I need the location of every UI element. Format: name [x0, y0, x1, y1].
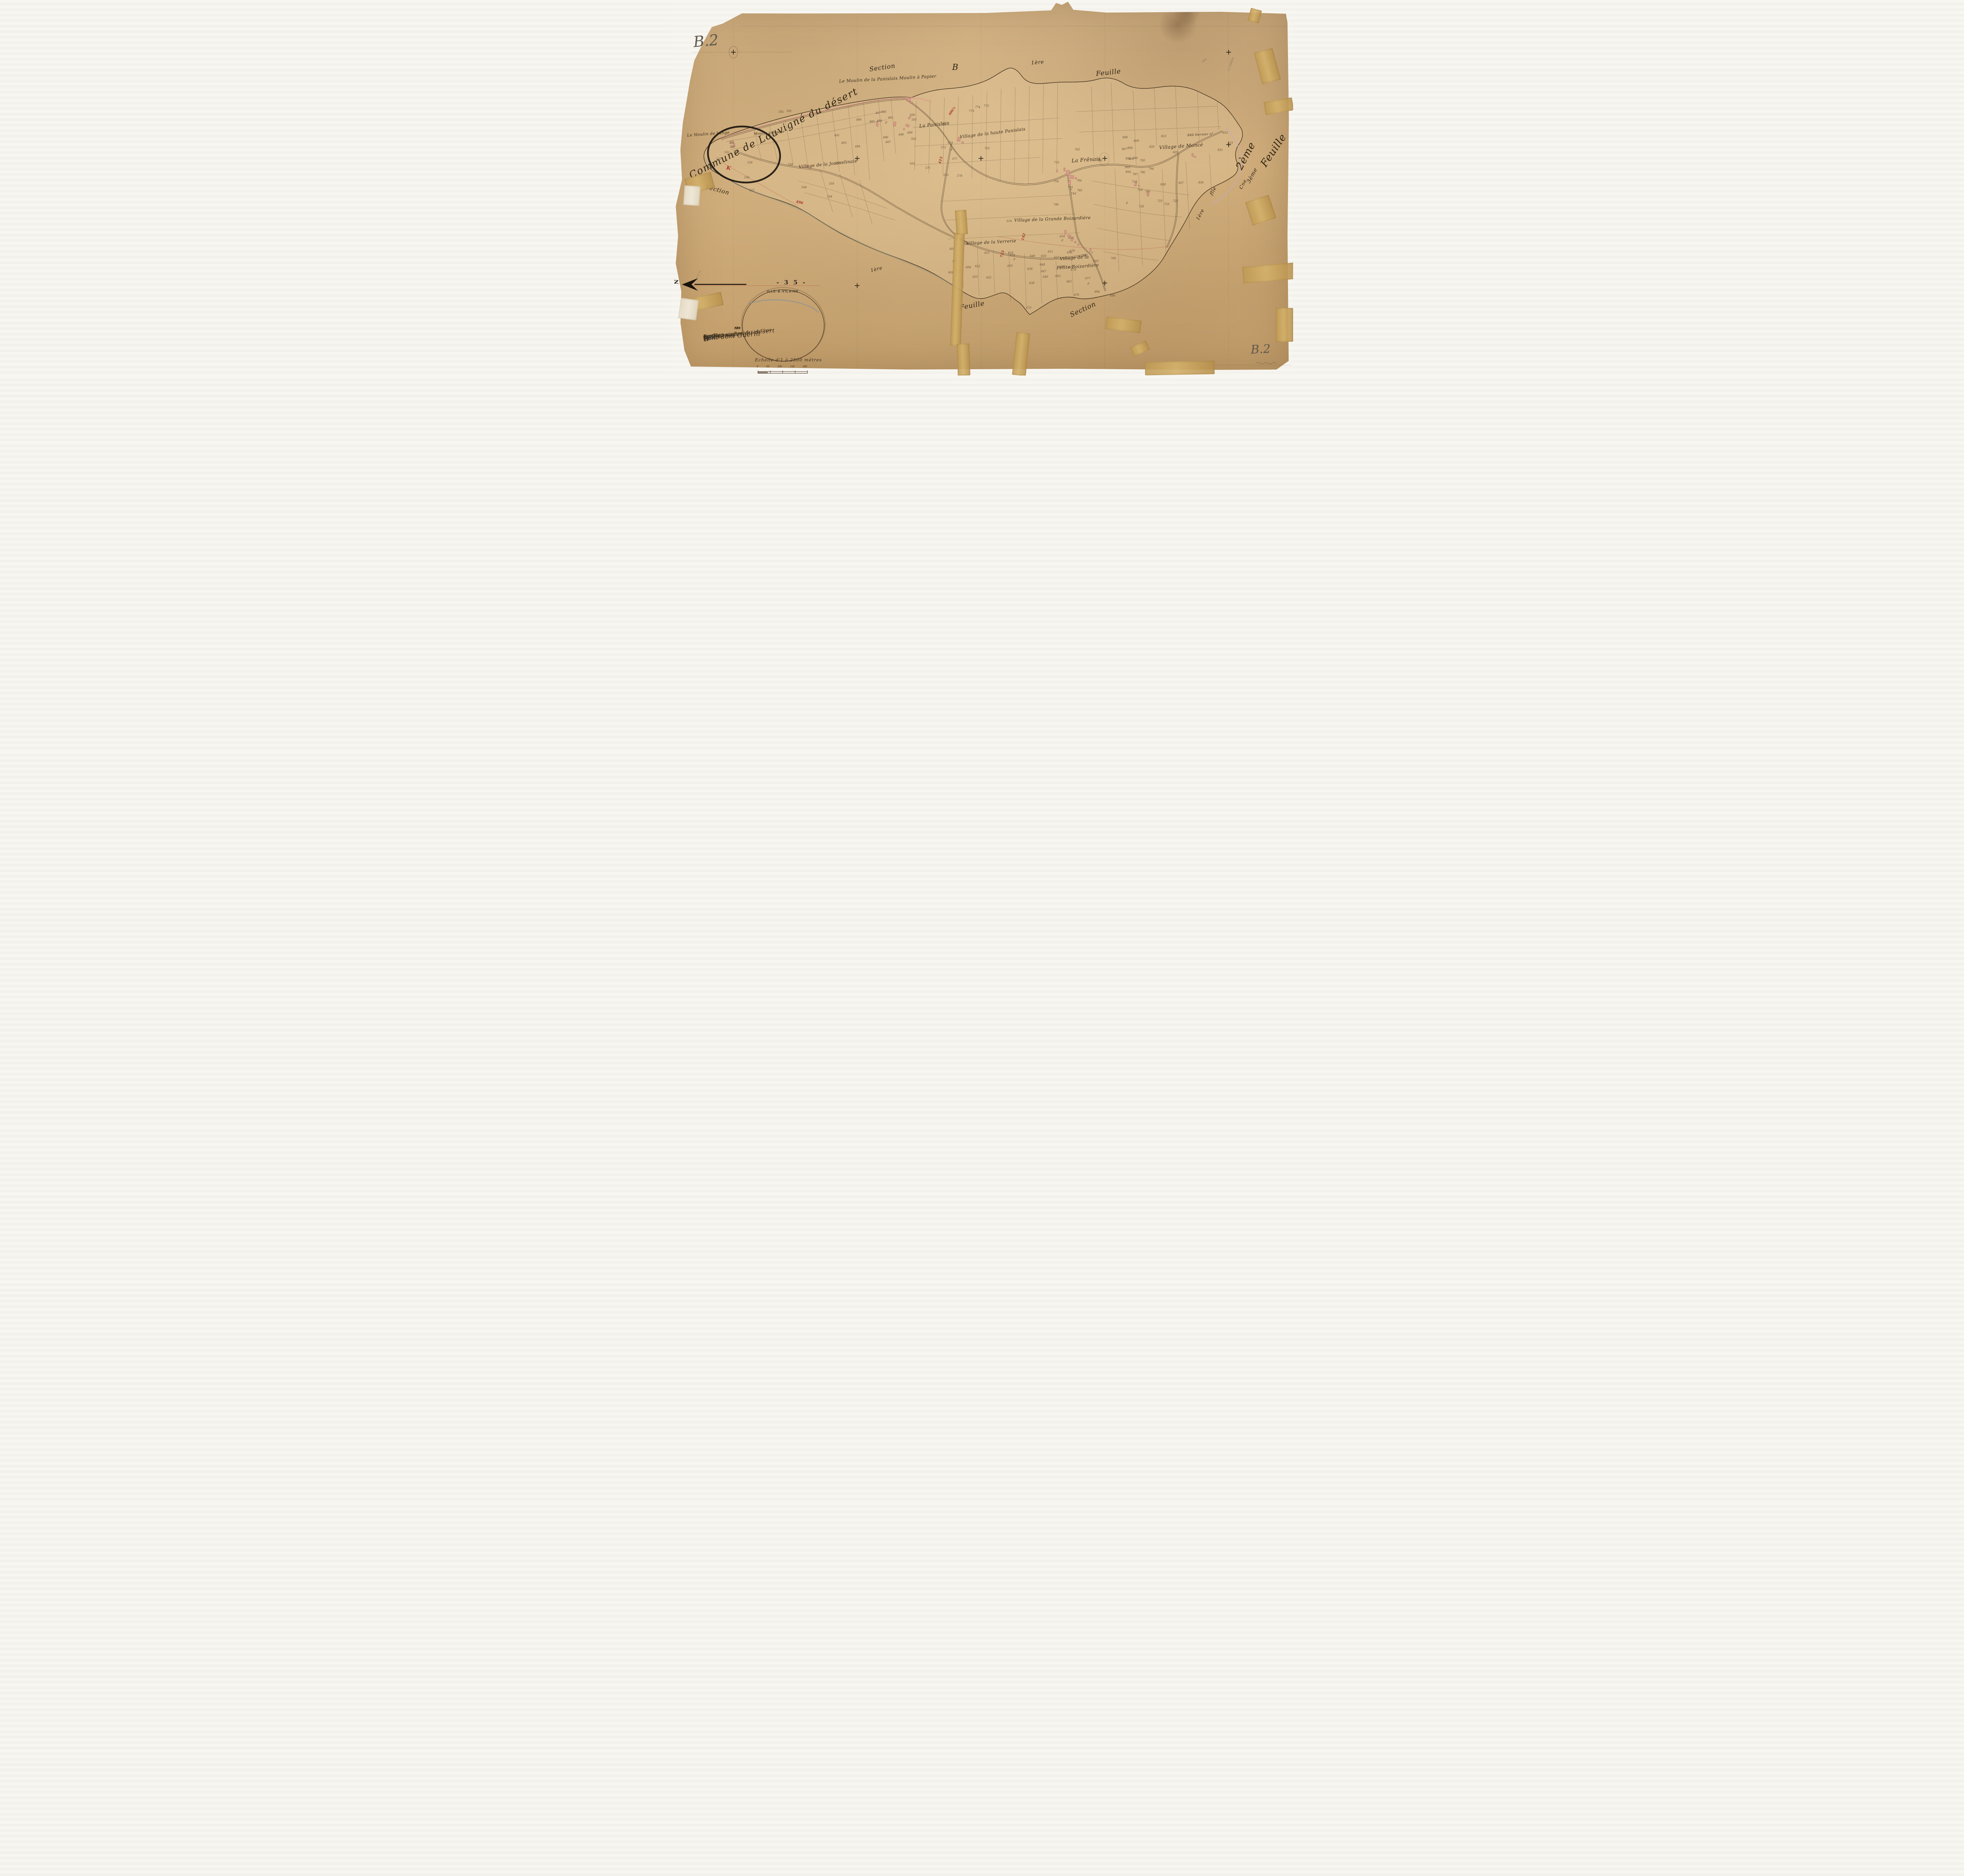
tape-patch — [955, 210, 968, 235]
north-arrow-icon — [682, 278, 746, 291]
tape-patch — [1145, 361, 1215, 375]
tape-patch — [1276, 308, 1293, 342]
scale-bar — [758, 370, 808, 373]
margin-squiggle — [1257, 363, 1276, 364]
tape-patch-light — [683, 185, 701, 206]
section-outline — [704, 68, 1242, 314]
tape-patch-light — [678, 298, 699, 320]
cartouche-frame — [742, 288, 825, 361]
map-drawing — [671, 0, 1293, 376]
map-scan: B.2 B.2 Commune de Louvigné du désert - … — [671, 0, 1293, 376]
tape-patch — [956, 343, 970, 376]
